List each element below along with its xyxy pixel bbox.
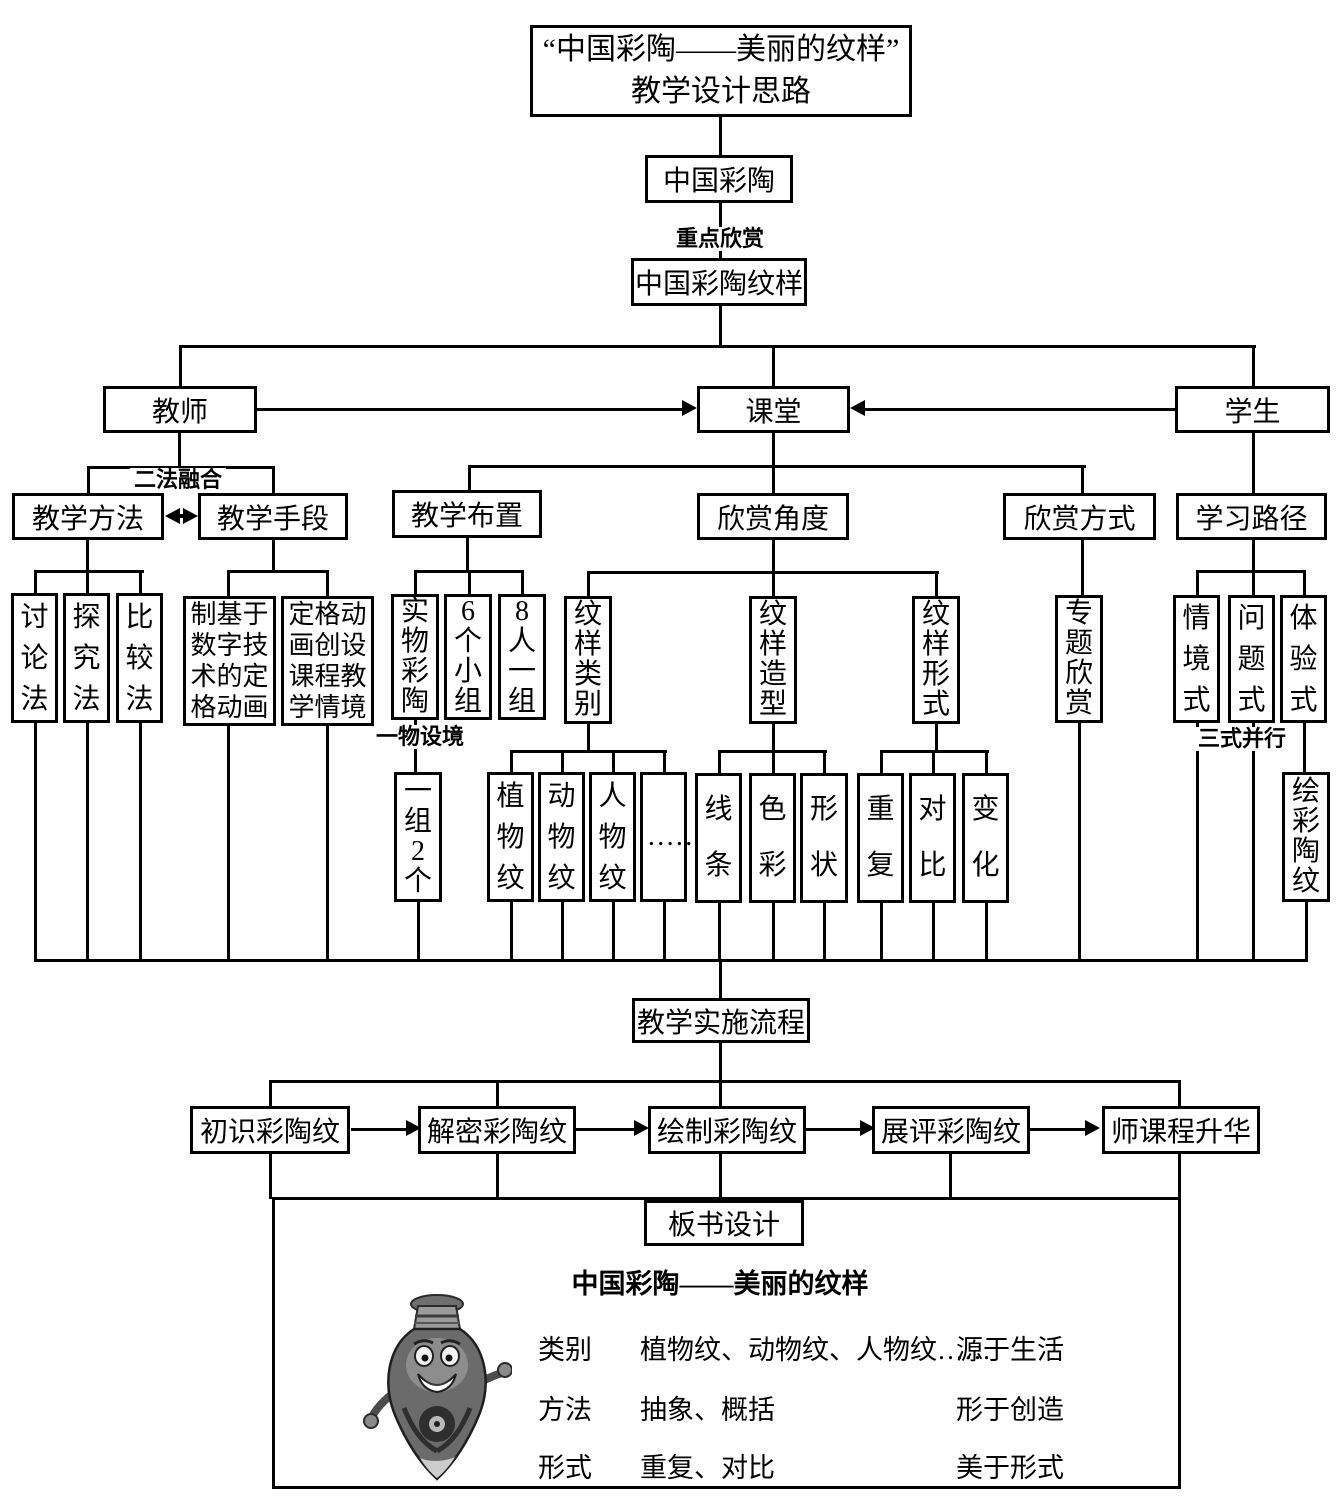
connector-line (1303, 723, 1306, 772)
arrowhead-icon (634, 1120, 649, 1136)
connector-line (87, 469, 90, 493)
node-caitao-wenyang: 中国彩陶纹样 (631, 258, 807, 306)
connector-line (1196, 573, 1199, 595)
node-jiaoxue-shouduan: 教学手段 (198, 493, 348, 540)
node-hui-caitaowen: 绘彩陶纹 (1282, 772, 1330, 902)
connector-line (1252, 433, 1255, 493)
connector-line (417, 902, 420, 961)
connector-line (1078, 723, 1081, 961)
node-jiemi-caitaowen: 解密彩陶纹 (418, 1106, 576, 1154)
node-6ge-xiaozu: 6个小组 (444, 594, 492, 720)
connector-line (612, 753, 615, 772)
node-tanjiufa: 探究法 (63, 593, 110, 723)
connector-line (772, 468, 775, 493)
connector-line (561, 753, 564, 772)
node-shi-kecheng-shenghua: 师课程升华 (1102, 1106, 1260, 1154)
connector-line (985, 753, 988, 773)
connector-line (34, 570, 144, 573)
connector-line (227, 570, 329, 573)
diagram-title-box: “中国彩陶——美丽的纹样” 教学设计思路 (530, 25, 912, 117)
connector-line (34, 959, 1308, 962)
node-ellipsis: …… (640, 772, 687, 902)
diagram-title-line1: “中国彩陶——美丽的纹样” (543, 29, 900, 71)
connector-line (1178, 1154, 1181, 1199)
arrowhead-icon (860, 1120, 875, 1136)
board-row-note: 形于创造 (956, 1388, 1064, 1427)
connector-line (932, 903, 935, 961)
connector-line (227, 726, 230, 961)
connector-line (272, 540, 275, 570)
connector-line (718, 753, 721, 773)
connector-line (269, 1080, 1181, 1083)
board-row-label: 方法 (538, 1388, 592, 1427)
connector-line (719, 1083, 722, 1106)
node-huizhi-caitaowen: 绘制彩陶纹 (648, 1106, 806, 1154)
node-duibi: 对比 (909, 773, 956, 903)
node-dongwuwen: 动物纹 (538, 772, 585, 902)
connector-line (935, 724, 938, 750)
connector-line (227, 573, 230, 596)
node-jiaoshi: 教师 (103, 386, 257, 433)
connector-line (1252, 540, 1255, 570)
connector-line (719, 306, 722, 345)
board-row-value: 抽象、概括 (640, 1388, 775, 1427)
node-xingzhuang: 形状 (800, 773, 848, 903)
node-xuesheng: 学生 (1175, 386, 1330, 433)
node-chushi-caitaowen: 初识彩陶纹 (190, 1106, 350, 1154)
connector-line (510, 750, 667, 753)
connector-line (612, 902, 615, 961)
node-zhi-dingge-donghua: 制基于数字技术的定格动画 (183, 596, 276, 726)
connector-line (178, 433, 181, 466)
label-sanshi-bingxing: 三式并行 (1196, 727, 1288, 751)
connector-line (326, 573, 329, 596)
connector-line (719, 117, 722, 155)
connector-line (663, 753, 666, 772)
node-taolunfa: 讨论法 (11, 593, 58, 723)
node-tiyanshi: 体验式 (1280, 595, 1327, 723)
connector-line (1081, 540, 1084, 595)
label-yiwu-shejing: 一物设境 (376, 725, 462, 749)
board-row-note: 源于生活 (956, 1328, 1064, 1367)
connector-line (949, 1154, 952, 1199)
connector-line (587, 571, 939, 574)
teaching-design-flowchart: “中国彩陶——美丽的纹样” 教学设计思路 中国彩陶 重点欣赏 中国彩陶纹样 教师… (0, 0, 1338, 1503)
connector-line (351, 1128, 406, 1131)
connector-line (1178, 1083, 1181, 1106)
connector-line (179, 345, 1256, 348)
connector-line (823, 903, 826, 961)
connector-line (139, 723, 142, 961)
node-zhanping-caitaowen: 展评彩陶纹 (872, 1106, 1030, 1154)
connector-line (575, 1128, 634, 1131)
double-arrow-right-icon (183, 508, 198, 524)
board-row-label: 形式 (538, 1446, 592, 1485)
node-chongfu: 重复 (857, 773, 904, 903)
connector-line (139, 573, 142, 593)
connector-line (1252, 573, 1255, 595)
node-dingge-qingjing: 定格动画创设课程教学情境 (281, 596, 374, 726)
connector-line (1196, 723, 1199, 961)
connector-line (719, 1043, 722, 1080)
connector-line (1030, 1128, 1085, 1131)
node-bianhua: 变化 (962, 773, 1009, 903)
node-renwuwen: 人物纹 (589, 772, 636, 902)
node-jiaoxue-fangfa: 教学方法 (12, 493, 164, 540)
node-wenyang-leibie: 纹样类别 (564, 596, 612, 724)
double-arrow-left-icon (165, 508, 180, 524)
connector-line (34, 723, 37, 961)
connector-line (1081, 468, 1084, 493)
node-wenyang-xingshi: 纹样形式 (912, 596, 960, 724)
node-xinshang-fangshi: 欣赏方式 (1003, 493, 1156, 540)
node-ketang: 课堂 (697, 386, 850, 433)
arrowhead-icon (682, 400, 697, 416)
connector-line (269, 1083, 272, 1106)
arrowhead-icon (406, 1120, 421, 1136)
node-zhuanti-xinshang: 专题欣赏 (1055, 595, 1103, 723)
node-qingjingshi: 情境式 (1173, 595, 1220, 723)
connector-line (86, 573, 89, 593)
connector-line (880, 753, 883, 773)
connector-line (805, 1128, 860, 1131)
arrowhead-icon (850, 400, 865, 416)
connector-line (823, 753, 826, 773)
connector-line (496, 1083, 499, 1106)
board-row-note: 美于形式 (956, 1446, 1064, 1485)
node-8ren-yizu: 8人一组 (498, 594, 546, 720)
connector-line (468, 573, 471, 594)
label-erfa-ronghe: 二法融合 (130, 468, 226, 492)
connector-line (718, 903, 721, 961)
node-zhiwuwen: 植物纹 (487, 772, 534, 902)
connector-line (719, 962, 722, 998)
connector-line (468, 465, 1086, 468)
connector-line (466, 538, 469, 570)
board-row-value: 植物纹、动物纹、人物纹…… (640, 1328, 991, 1367)
node-zhongguo-caitao: 中国彩陶 (645, 155, 793, 203)
node-xuexi-lujing: 学习路径 (1176, 493, 1327, 540)
connector-line (86, 540, 89, 570)
node-bijiaofa: 比较法 (116, 593, 163, 723)
connector-line (772, 753, 775, 773)
connector-line (587, 574, 590, 596)
connector-line (257, 408, 682, 411)
connector-line (865, 408, 1175, 411)
connector-line (272, 469, 275, 493)
connector-line (880, 903, 883, 961)
connector-line (414, 573, 417, 594)
connector-line (510, 753, 513, 772)
connector-line (1252, 348, 1255, 386)
connector-line (468, 468, 471, 490)
arrowhead-icon (1085, 1120, 1100, 1136)
connector-line (179, 348, 182, 386)
node-xinshang-jiaodu: 欣赏角度 (697, 493, 849, 540)
diagram-title-line2: 教学设计思路 (631, 71, 811, 113)
node-yizu-2ge: 一组2个 (394, 772, 442, 902)
connector-line (1196, 570, 1306, 573)
connector-line (34, 573, 37, 593)
connector-line (86, 723, 89, 961)
board-row-label: 类别 (538, 1328, 592, 1367)
connector-line (521, 573, 524, 594)
node-banshu-sheji: 板书设计 (644, 1200, 804, 1246)
node-jiaoxue-buzhi: 教学布置 (392, 490, 542, 538)
pottery-mascot-image (362, 1288, 512, 1488)
connector-line (772, 348, 775, 386)
connector-line (772, 574, 775, 596)
connector-line (269, 1154, 272, 1199)
node-shiwu-caitao: 实物彩陶 (391, 594, 439, 720)
connector-line (935, 574, 938, 596)
connector-line (772, 903, 775, 961)
connector-line (326, 726, 329, 961)
connector-line (1303, 573, 1306, 595)
connector-line (1252, 723, 1255, 961)
connector-line (772, 724, 775, 750)
node-secai: 色彩 (749, 773, 796, 903)
node-wentishi: 问题式 (1228, 595, 1275, 723)
connector-line (772, 433, 775, 465)
connector-line (496, 1154, 499, 1199)
connector-line (510, 902, 513, 961)
connector-line (561, 902, 564, 961)
connector-line (587, 724, 590, 750)
board-row-value: 重复、对比 (640, 1446, 775, 1485)
node-xiantiao: 线条 (695, 773, 742, 903)
connector-line (719, 1154, 722, 1202)
connector-line (772, 540, 775, 571)
node-jiaoxue-shishi-liucheng: 教学实施流程 (632, 998, 810, 1043)
connector-line (985, 903, 988, 961)
node-wenyang-zaoxing: 纹样造型 (749, 596, 797, 724)
connector-line (663, 902, 666, 961)
connector-line (932, 753, 935, 773)
label-zhongdian-xinshang: 重点欣赏 (672, 227, 768, 251)
connector-line (1305, 902, 1308, 961)
